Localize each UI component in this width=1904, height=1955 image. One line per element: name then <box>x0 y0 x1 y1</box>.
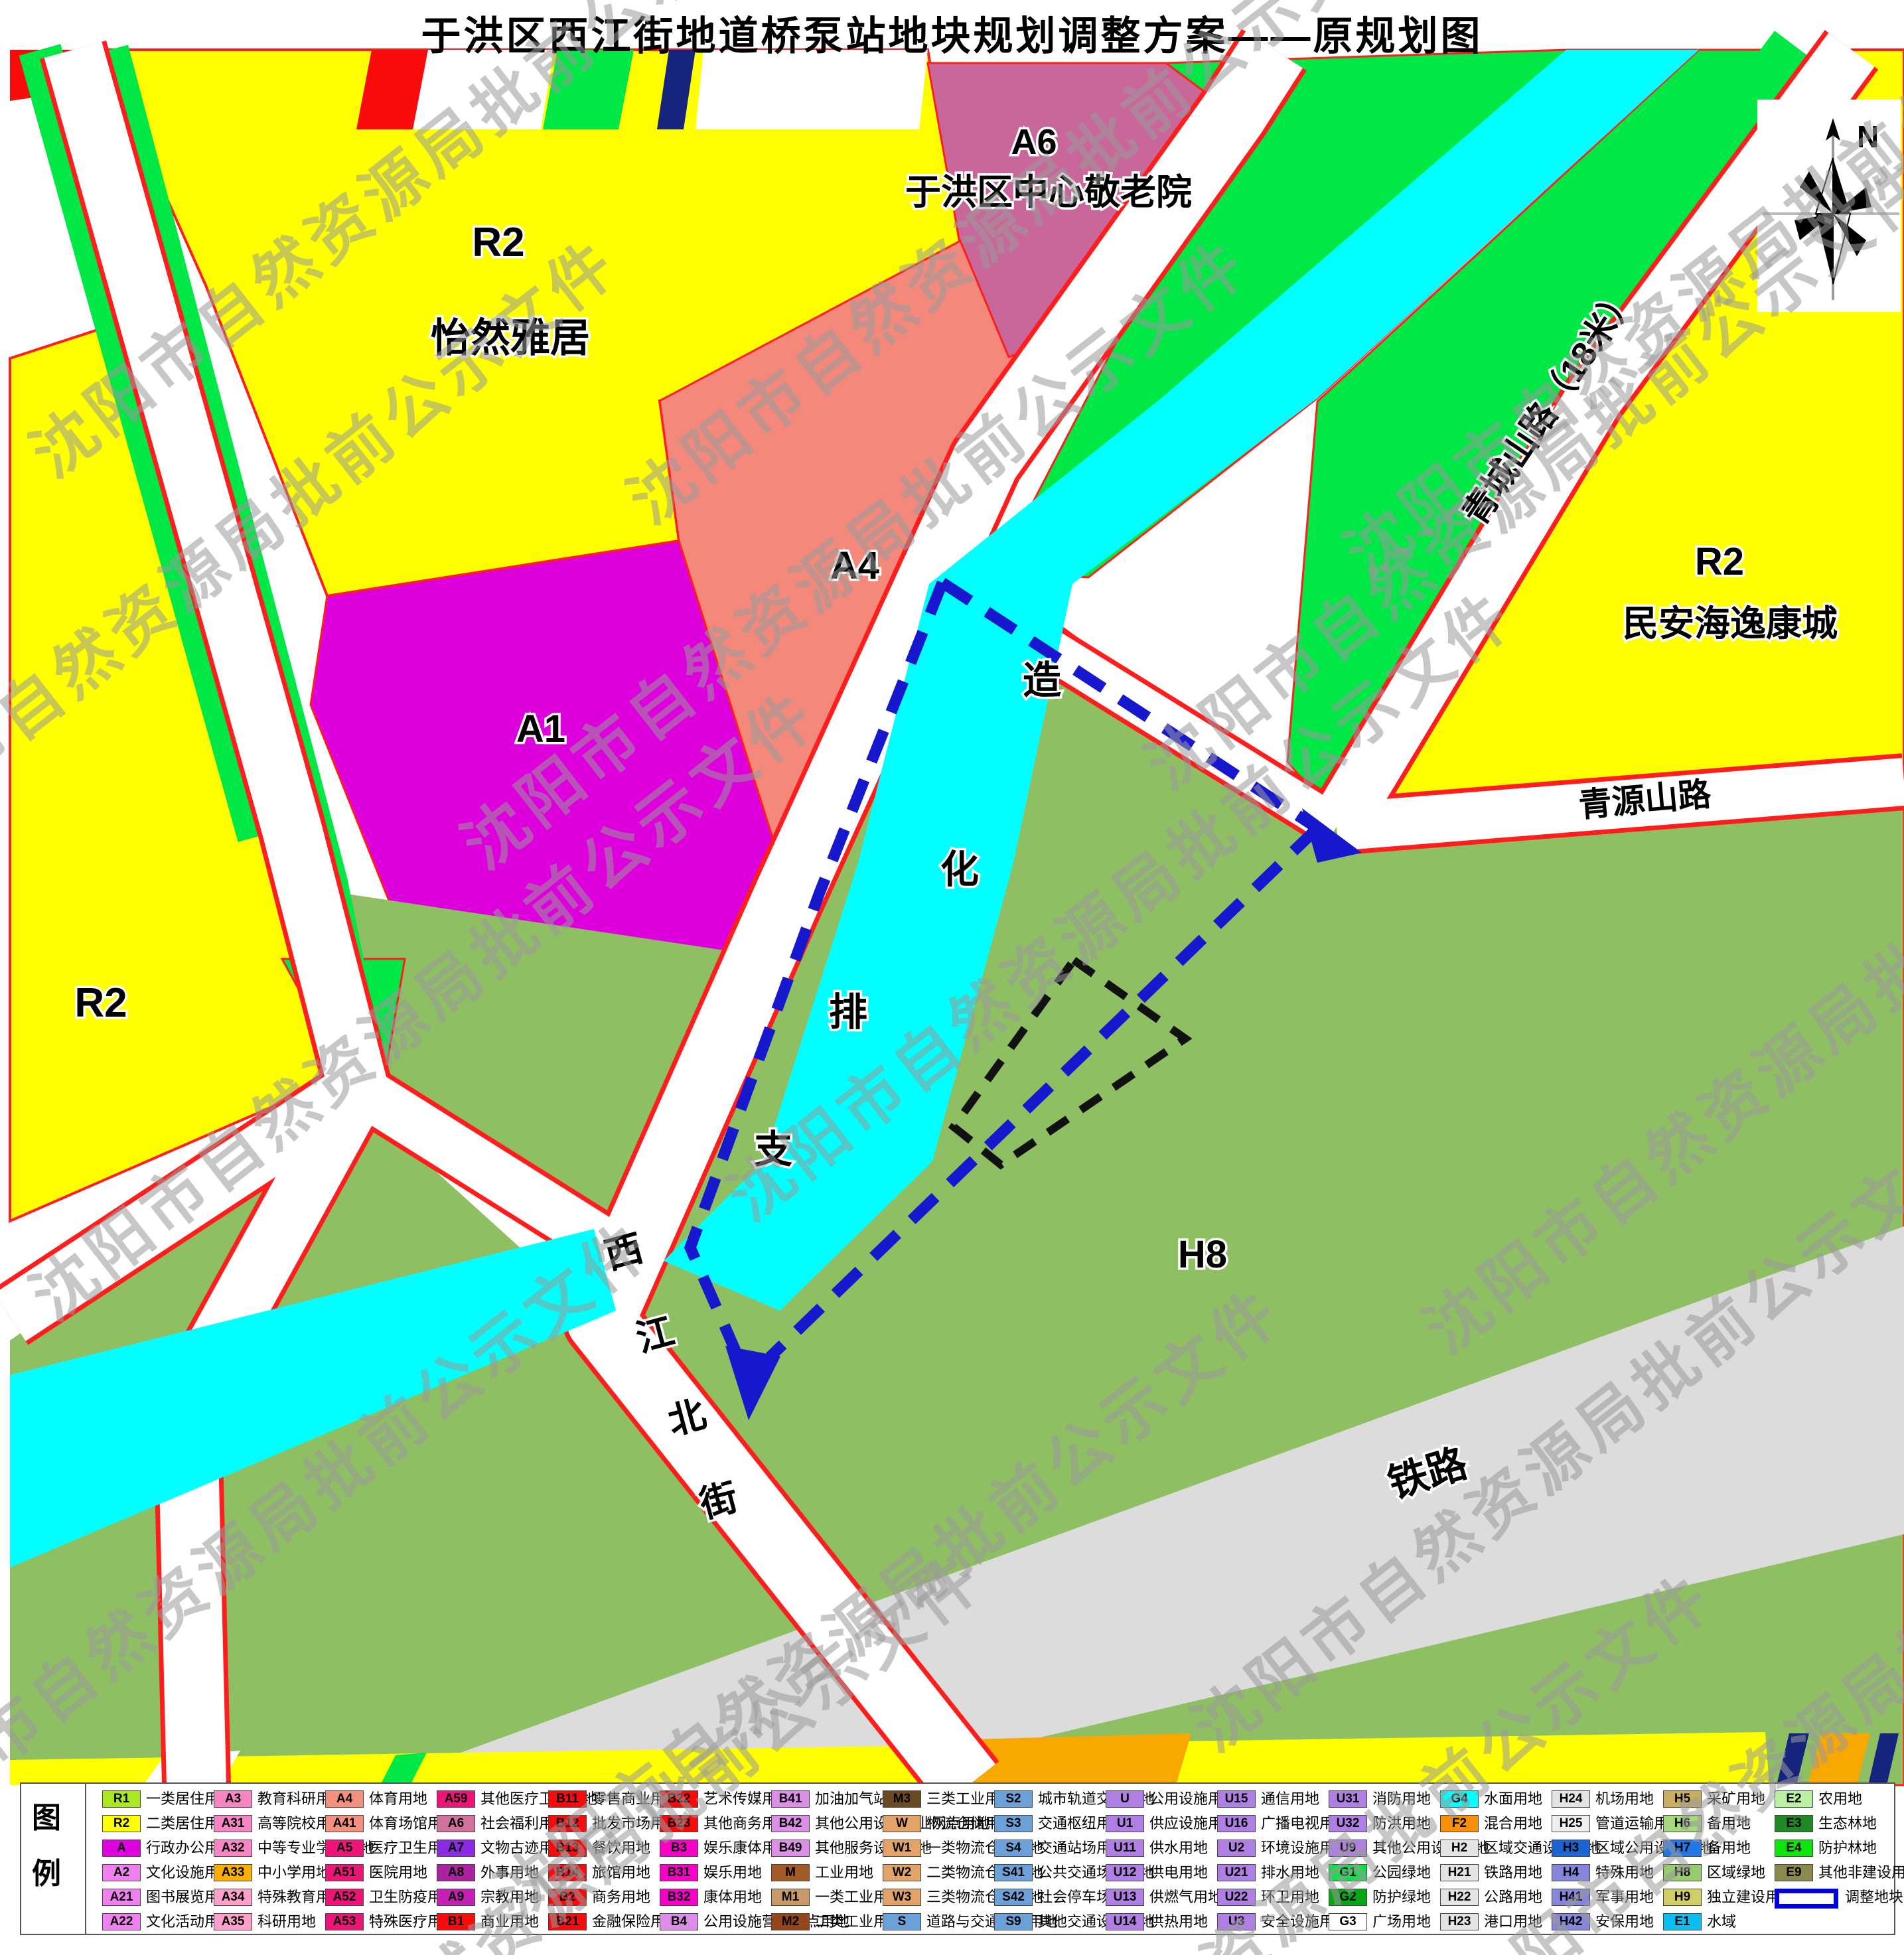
legend-swatch-A34: A34 <box>214 1889 252 1906</box>
legend-swatch-A51: A51 <box>325 1864 364 1881</box>
legend-swatch-B14: B14 <box>548 1864 587 1881</box>
legend-swatch-B41: B41 <box>771 1790 810 1808</box>
legend-swatch-G1: G1 <box>1329 1864 1367 1881</box>
legend-label-B2: 商务用地 <box>592 1889 650 1906</box>
legend-swatch-B12: B12 <box>548 1815 587 1832</box>
legend-swatch-B13: B13 <box>548 1840 587 1857</box>
legend-swatch-F2: F2 <box>1440 1815 1479 1832</box>
legend-swatch-A2: A2 <box>102 1864 141 1881</box>
legend-label-B32: 康体用地 <box>703 1889 762 1906</box>
zone-r2-left-code: R2 <box>74 980 127 1026</box>
legend-swatch-H21: H21 <box>1440 1864 1479 1881</box>
legend-swatch-H41: H41 <box>1552 1889 1590 1906</box>
legend-label-G3: 广场用地 <box>1372 1913 1431 1930</box>
legend-label-E1: 水域 <box>1707 1913 1736 1930</box>
legend-swatch-A35: A35 <box>214 1913 252 1930</box>
zone-r2-yiran-name: 怡然雅居 <box>431 316 590 360</box>
legend-label-U21: 排水用地 <box>1261 1864 1319 1881</box>
legend-divider <box>85 1784 86 1934</box>
legend-swatch-H3: H3 <box>1552 1840 1590 1857</box>
legend-swatch-B31: B31 <box>660 1864 698 1881</box>
legend-heading: 图例 <box>27 1790 66 1901</box>
legend-swatch-U1: U1 <box>1106 1815 1144 1832</box>
legend-label-U13: 供燃气用地 <box>1149 1889 1222 1906</box>
legend-label-H41: 军事用地 <box>1595 1889 1654 1906</box>
legend-label-H22: 公路用地 <box>1484 1889 1542 1906</box>
zone-h8-code: H8 <box>1178 1233 1227 1276</box>
zone-r2-minan-code: R2 <box>1695 540 1744 583</box>
legend-swatch-M2: M2 <box>771 1913 810 1930</box>
zone-top-sliver-white-1 <box>411 50 554 129</box>
legend-swatch-U14: U14 <box>1106 1913 1144 1930</box>
legend-swatch-A: A <box>102 1840 141 1857</box>
legend-swatch-A22: A22 <box>102 1913 141 1930</box>
legend-swatch-A4: A4 <box>325 1790 364 1808</box>
page-title: 于洪区西江街地道桥泵站地块规划调整方案——原规划图 <box>0 4 1904 62</box>
legend-swatch-A52: A52 <box>325 1889 364 1906</box>
legend-swatch-A32: A32 <box>214 1840 252 1857</box>
legend-swatch-B32: B32 <box>660 1889 698 1906</box>
legend-swatch-B4: B4 <box>660 1913 698 1930</box>
zone-top-sliver-green <box>543 50 634 129</box>
legend-swatch-B3: B3 <box>660 1840 698 1857</box>
legend-label-U31: 消防用地 <box>1372 1790 1431 1808</box>
legend-swatch-H22: H22 <box>1440 1889 1479 1906</box>
legend-label-E2: 农用地 <box>1818 1790 1862 1808</box>
legend-label-M: 工业用地 <box>815 1864 873 1881</box>
legend-swatch-U32: U32 <box>1329 1815 1367 1832</box>
legend-label-U11: 供水用地 <box>1149 1840 1208 1857</box>
legend-swatch-S42: S42 <box>994 1889 1033 1906</box>
legend-label-adjust-plot: 调整地块 <box>1845 1889 1903 1906</box>
legend-swatch-A5: A5 <box>325 1840 364 1857</box>
legend-swatch-G3: G3 <box>1329 1913 1367 1930</box>
legend-swatch-W: W <box>883 1815 921 1832</box>
legend-swatch-A8: A8 <box>437 1864 475 1881</box>
legend-swatch-B11: B11 <box>548 1790 587 1808</box>
legend-swatch-B21: B21 <box>548 1913 587 1930</box>
legend-label-B13: 餐饮用地 <box>592 1840 650 1857</box>
legend-label-E9: 其他非建设用地 <box>1818 1864 1904 1881</box>
legend-swatch-M1: M1 <box>771 1889 810 1906</box>
legend-swatch-U2: U2 <box>1217 1840 1256 1857</box>
legend-label-H4: 特殊用地 <box>1595 1864 1654 1881</box>
legend-swatch-S3: S3 <box>994 1815 1033 1832</box>
legend-label-U14: 供热用地 <box>1149 1913 1208 1930</box>
legend-swatch-U31: U31 <box>1329 1790 1367 1808</box>
legend-swatch-H8: H8 <box>1663 1864 1702 1881</box>
zone-a6-code: A6 <box>1011 122 1057 162</box>
legend-swatch-U: U <box>1106 1790 1144 1808</box>
legend-swatch-E9: E9 <box>1775 1864 1813 1881</box>
legend-swatch-S: S <box>883 1913 921 1930</box>
river-name-char1: 造 <box>1023 659 1061 702</box>
zone-a1-code: A1 <box>516 707 565 751</box>
legend-swatch-A9: A9 <box>437 1889 475 1906</box>
legend-swatch-E4: E4 <box>1775 1840 1813 1857</box>
planning-document: 于洪区西江街地道桥泵站地块规划调整方案——原规划图 <box>0 0 1904 1955</box>
legend-swatch-H5: H5 <box>1663 1790 1702 1808</box>
legend-swatch-W3: W3 <box>883 1889 921 1906</box>
zone-r2-minan-name: 民安海逸康城 <box>1623 604 1838 644</box>
legend-swatch-W1: W1 <box>883 1840 921 1857</box>
legend-swatch-A33: A33 <box>214 1864 252 1881</box>
legend-label-G4: 水面用地 <box>1484 1790 1542 1808</box>
legend-swatch-B42: B42 <box>771 1815 810 1832</box>
legend-swatch-G2: G2 <box>1329 1889 1367 1906</box>
zone-a6-name: 于洪区中心敬老院 <box>905 173 1192 212</box>
legend-swatch-A21: A21 <box>102 1889 141 1906</box>
legend-label-B1: 商业用地 <box>480 1913 539 1930</box>
legend-label-E4: 防护林地 <box>1818 1840 1877 1857</box>
legend-swatch-H9: H9 <box>1663 1889 1702 1906</box>
planning-map: N R2怡然雅居A6于洪区中心敬老院A4A1R2R2民安海逸康城青城山路（18米… <box>0 0 1904 1955</box>
legend-swatch-A3: A3 <box>214 1790 252 1808</box>
legend-label-A35: 科研用地 <box>257 1913 316 1930</box>
legend-label-H6: 备用地 <box>1707 1815 1751 1832</box>
legend-swatch-U22: U22 <box>1217 1889 1256 1906</box>
legend-label-A4: 体育用地 <box>369 1790 427 1808</box>
compass-n-label: N <box>1857 119 1879 154</box>
river-name-char4: 支 <box>754 1128 792 1171</box>
legend-label-U15: 通信用地 <box>1261 1790 1319 1808</box>
legend-swatch-H4: H4 <box>1552 1864 1590 1881</box>
legend-swatch-W2: W2 <box>883 1864 921 1881</box>
legend-swatch-H2: H2 <box>1440 1840 1479 1857</box>
legend-label-H24: 机场用地 <box>1595 1790 1654 1808</box>
legend-swatch-H42: H42 <box>1552 1913 1590 1930</box>
legend-swatch-H24: H24 <box>1552 1790 1590 1808</box>
legend-swatch-S41: S41 <box>994 1864 1033 1881</box>
legend-label-H5: 采矿用地 <box>1707 1790 1765 1808</box>
legend-swatch-R2: R2 <box>102 1815 141 1832</box>
legend-swatch-A6: A6 <box>437 1815 475 1832</box>
legend-swatch-E3: E3 <box>1775 1815 1813 1832</box>
legend-label-A9: 宗教用地 <box>480 1889 539 1906</box>
legend-swatch-A59: A59 <box>437 1790 475 1808</box>
legend-swatch-U11: U11 <box>1106 1840 1144 1857</box>
legend-label-G1: 公园绿地 <box>1372 1864 1431 1881</box>
legend-swatch-B2: B2 <box>548 1889 587 1906</box>
legend-label-H42: 安保用地 <box>1595 1913 1654 1930</box>
legend-swatch-B22: B22 <box>660 1790 698 1808</box>
zone-a4-code: A4 <box>830 544 879 587</box>
legend-label-U22: 环卫用地 <box>1261 1889 1319 1906</box>
legend-swatch-U3: U3 <box>1217 1913 1256 1930</box>
legend-label-U12: 供电用地 <box>1149 1864 1208 1881</box>
legend-swatch-M3: M3 <box>883 1790 921 1808</box>
legend-swatch-H23: H23 <box>1440 1913 1479 1930</box>
legend-swatch-G4: G4 <box>1440 1790 1479 1808</box>
legend-swatch-U12: U12 <box>1106 1864 1144 1881</box>
compass: N <box>1757 100 1901 312</box>
legend-swatch-U16: U16 <box>1217 1815 1256 1832</box>
legend-swatch-B1: B1 <box>437 1913 475 1930</box>
legend-label-B31: 娱乐用地 <box>703 1864 762 1881</box>
legend-swatch-A41: A41 <box>325 1815 364 1832</box>
legend-swatch-A53: A53 <box>325 1913 364 1930</box>
legend-label-A8: 外事用地 <box>480 1864 539 1881</box>
legend-swatch-H7: H7 <box>1663 1840 1702 1857</box>
legend-label-F2: 混合用地 <box>1484 1815 1542 1832</box>
legend-swatch-E1: E1 <box>1663 1913 1702 1930</box>
legend-label-H21: 铁路用地 <box>1484 1864 1542 1881</box>
legend-swatch-A7: A7 <box>437 1840 475 1857</box>
legend-swatch-U13: U13 <box>1106 1889 1144 1906</box>
legend-swatch-U9: U9 <box>1329 1840 1367 1857</box>
legend-swatch-adjust-plot <box>1775 1889 1838 1909</box>
legend-swatch-U15: U15 <box>1217 1790 1256 1808</box>
legend-swatch-R1: R1 <box>102 1790 141 1808</box>
legend-swatch-H25: H25 <box>1552 1815 1590 1832</box>
legend-label-H7: 备用地 <box>1707 1840 1751 1857</box>
zone-top-sliver-white-2 <box>696 50 928 129</box>
legend-swatch-H6: H6 <box>1663 1815 1702 1832</box>
legend-swatch-S9: S9 <box>994 1913 1033 1930</box>
river-name-char3: 排 <box>829 991 867 1034</box>
legend-swatch-E2: E2 <box>1775 1790 1813 1808</box>
legend-label-G2: 防护绿地 <box>1372 1889 1431 1906</box>
legend-swatch-A31: A31 <box>214 1815 252 1832</box>
legend-swatch-B23: B23 <box>660 1815 698 1832</box>
legend-label-H8: 区域绿地 <box>1707 1864 1765 1881</box>
zone-r2-yiran-code: R2 <box>472 220 524 265</box>
legend-label-A33: 中小学用地 <box>257 1864 330 1881</box>
legend-label-U32: 防洪用地 <box>1372 1815 1431 1832</box>
legend-swatch-U21: U21 <box>1217 1864 1256 1881</box>
legend-label-E3: 生态林地 <box>1818 1815 1877 1832</box>
legend-label-A51: 医院用地 <box>369 1864 427 1881</box>
river-name-char2: 化 <box>940 848 979 891</box>
legend-label-B14: 旅馆用地 <box>592 1864 650 1881</box>
legend-swatch-S2: S2 <box>994 1790 1033 1808</box>
legend-swatch-B49: B49 <box>771 1840 810 1857</box>
legend-swatch-S4: S4 <box>994 1840 1033 1857</box>
legend-panel: 图例 R1一类居住用地R2二类居住用地A行政办公用地A2文化设施用地A21图书展… <box>20 1782 1895 1935</box>
legend-swatch-M: M <box>771 1864 810 1881</box>
legend-label-H23: 港口用地 <box>1484 1913 1542 1930</box>
